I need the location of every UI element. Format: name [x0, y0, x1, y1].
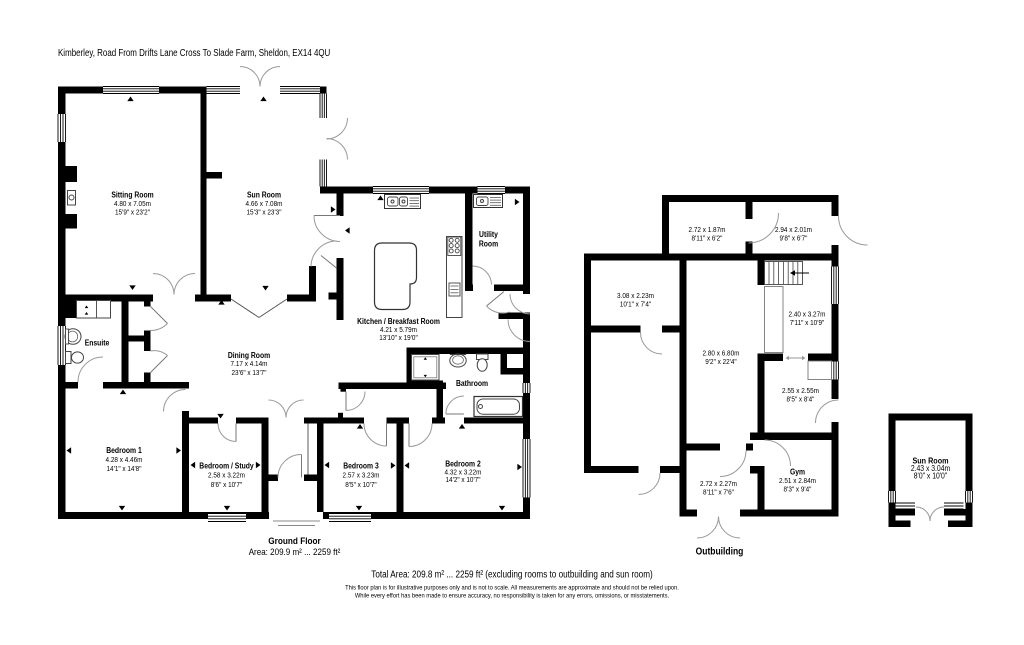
svg-text:Bedroom 3: Bedroom 3	[343, 462, 379, 471]
svg-text:2.40 x 3.27m: 2.40 x 3.27m	[789, 309, 826, 318]
svg-text:Ground Floor: Ground Floor	[268, 536, 321, 547]
svg-text:8'5" x 10'7": 8'5" x 10'7"	[345, 480, 377, 489]
svg-text:Bedroom 1: Bedroom 1	[106, 446, 142, 455]
svg-text:3.08 x 2.23m: 3.08 x 2.23m	[617, 291, 654, 300]
svg-text:Bathroom: Bathroom	[456, 379, 488, 388]
svg-text:15'3" x 23'3": 15'3" x 23'3"	[247, 207, 282, 216]
svg-text:14'2" x 10'7": 14'2" x 10'7"	[446, 475, 481, 484]
svg-text:8'3" x 9'4": 8'3" x 9'4"	[784, 485, 812, 494]
svg-text:7.17 x 4.14m: 7.17 x 4.14m	[231, 359, 268, 368]
svg-text:9'8" x 6'7": 9'8" x 6'7"	[780, 233, 808, 242]
svg-text:Room: Room	[479, 239, 498, 248]
svg-text:8'11" x 7'6": 8'11" x 7'6"	[703, 488, 734, 497]
svg-text:14'1" x 14'8": 14'1" x 14'8"	[107, 464, 142, 473]
svg-text:15'9" x 23'2": 15'9" x 23'2"	[115, 207, 150, 216]
svg-text:2.55 x 2.55m: 2.55 x 2.55m	[782, 386, 819, 395]
svg-text:Area: 209.9 m² ... 2259 ft²: Area: 209.9 m² ... 2259 ft²	[249, 547, 341, 558]
svg-text:Ensuite: Ensuite	[85, 339, 110, 348]
svg-text:Kimberley, Road From Drifts La: Kimberley, Road From Drifts Lane Cross T…	[58, 48, 330, 59]
svg-text:2.80 x 6.80m: 2.80 x 6.80m	[703, 348, 740, 357]
svg-text:Bedroom / Study: Bedroom / Study	[199, 462, 254, 471]
svg-text:8'6" x 10'7": 8'6" x 10'7"	[211, 480, 243, 489]
svg-text:8'11" x 6'2": 8'11" x 6'2"	[692, 233, 723, 242]
svg-text:Outbuilding: Outbuilding	[696, 546, 744, 557]
svg-text:23'6" x 13'7": 23'6" x 13'7"	[232, 368, 267, 377]
svg-text:7'11" x 10'9": 7'11" x 10'9"	[790, 318, 825, 327]
svg-text:2.58 x 3.22m: 2.58 x 3.22m	[208, 471, 245, 480]
svg-text:While every effort has been ma: While every effort has been made to ensu…	[355, 593, 669, 600]
svg-text:10'1" x 7'4": 10'1" x 7'4"	[620, 300, 652, 309]
svg-text:2.57 x 3.23m: 2.57 x 3.23m	[343, 471, 380, 480]
svg-text:This floor plan is for illustr: This floor plan is for illustrative purp…	[345, 585, 679, 592]
svg-text:8'5" x 8'4": 8'5" x 8'4"	[787, 395, 815, 404]
svg-text:8'0" x 10'0": 8'0" x 10'0"	[914, 472, 948, 481]
svg-text:4.28 x 4.46m: 4.28 x 4.46m	[106, 455, 143, 464]
svg-text:Total Area: 209.8 m² ... 2259: Total Area: 209.8 m² ... 2259 ft² (exclu…	[371, 570, 652, 581]
svg-text:13'10" x 19'0": 13'10" x 19'0"	[379, 333, 418, 342]
svg-text:Utility: Utility	[479, 230, 498, 239]
svg-text:9'2" x 22'4": 9'2" x 22'4"	[705, 357, 737, 366]
